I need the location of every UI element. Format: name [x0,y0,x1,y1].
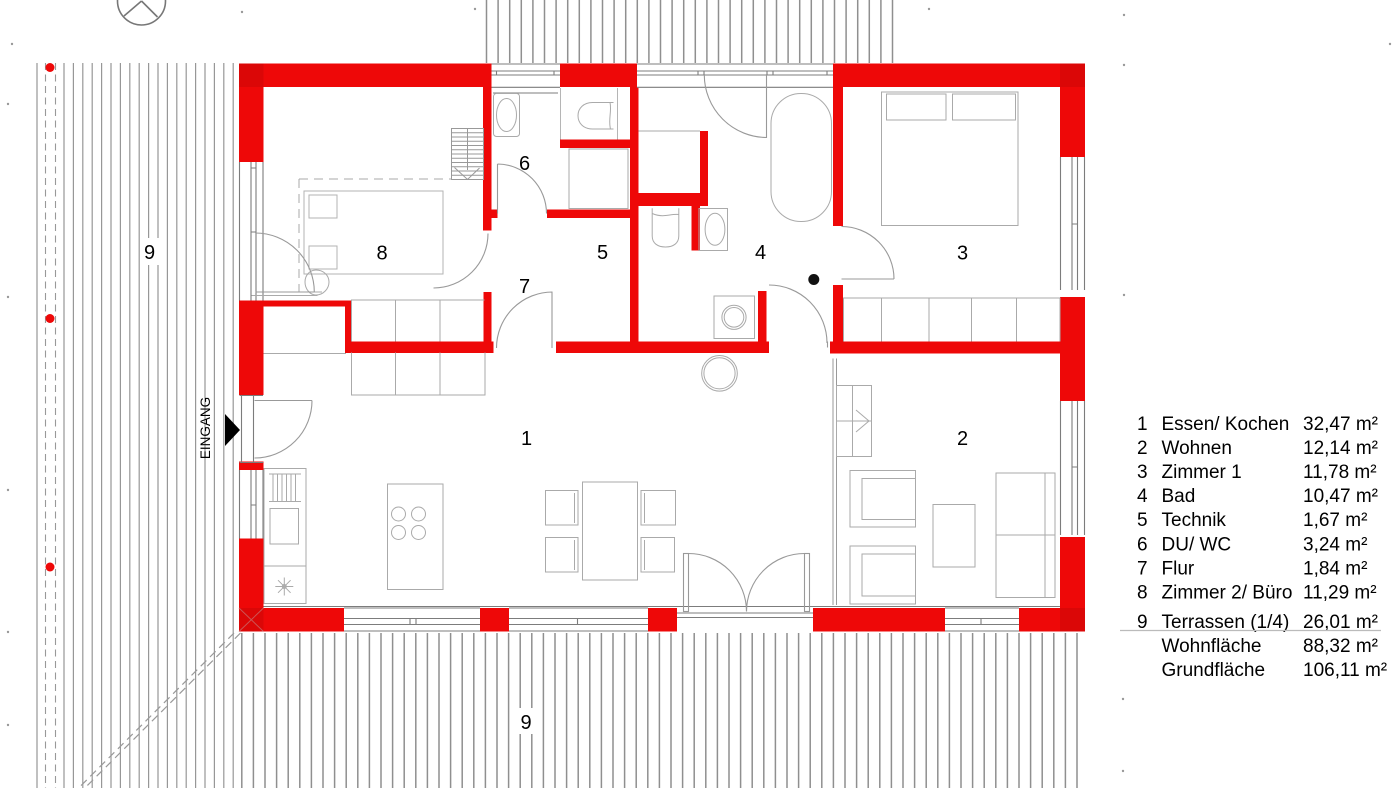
svg-text:4: 4 [755,242,766,264]
svg-text:5: 5 [597,242,608,264]
svg-text:7: 7 [519,276,530,298]
svg-text:106,11 m²: 106,11 m² [1303,660,1387,681]
svg-text:Zimmer 2/ Büro: Zimmer 2/ Büro [1162,583,1293,604]
svg-text:6: 6 [1137,535,1148,556]
svg-text:9: 9 [1137,612,1148,633]
svg-text:11,78 m²: 11,78 m² [1303,462,1377,483]
svg-text:1: 1 [521,428,532,450]
svg-text:3: 3 [957,243,968,265]
svg-text:EINGANG: EINGANG [198,397,213,459]
svg-text:12,14 m²: 12,14 m² [1303,438,1378,459]
svg-text:Terrassen (1/4): Terrassen (1/4) [1162,612,1290,633]
svg-text:1,67 m²: 1,67 m² [1303,510,1367,531]
svg-text:9: 9 [520,712,531,734]
svg-text:4: 4 [1137,486,1148,507]
svg-text:5: 5 [1137,510,1148,531]
svg-text:3: 3 [1137,462,1148,483]
svg-text:Grundfläche: Grundfläche [1162,660,1266,681]
svg-text:26,01 m²: 26,01 m² [1303,612,1378,633]
svg-text:3,24 m²: 3,24 m² [1303,535,1367,556]
svg-text:Essen/ Kochen: Essen/ Kochen [1162,414,1290,435]
svg-text:7: 7 [1137,559,1148,580]
svg-text:9: 9 [144,242,155,264]
svg-text:DU/ WC: DU/ WC [1162,535,1232,556]
svg-text:32,47 m²: 32,47 m² [1303,414,1378,435]
svg-text:8: 8 [376,243,387,265]
svg-text:1: 1 [1137,414,1148,435]
svg-text:Bad: Bad [1162,486,1196,507]
svg-text:2: 2 [1137,438,1148,459]
svg-text:2: 2 [957,428,968,450]
svg-text:Zimmer 1: Zimmer 1 [1162,462,1242,483]
svg-text:Flur: Flur [1162,559,1195,580]
svg-text:88,32 m²: 88,32 m² [1303,636,1378,657]
svg-text:Wohnfläche: Wohnfläche [1162,636,1262,657]
svg-text:Wohnen: Wohnen [1162,438,1232,459]
svg-text:Technik: Technik [1162,510,1227,531]
svg-text:10,47 m²: 10,47 m² [1303,486,1378,507]
svg-text:1,84 m²: 1,84 m² [1303,559,1367,580]
svg-text:11,29 m²: 11,29 m² [1303,583,1377,604]
svg-text:8: 8 [1137,583,1148,604]
